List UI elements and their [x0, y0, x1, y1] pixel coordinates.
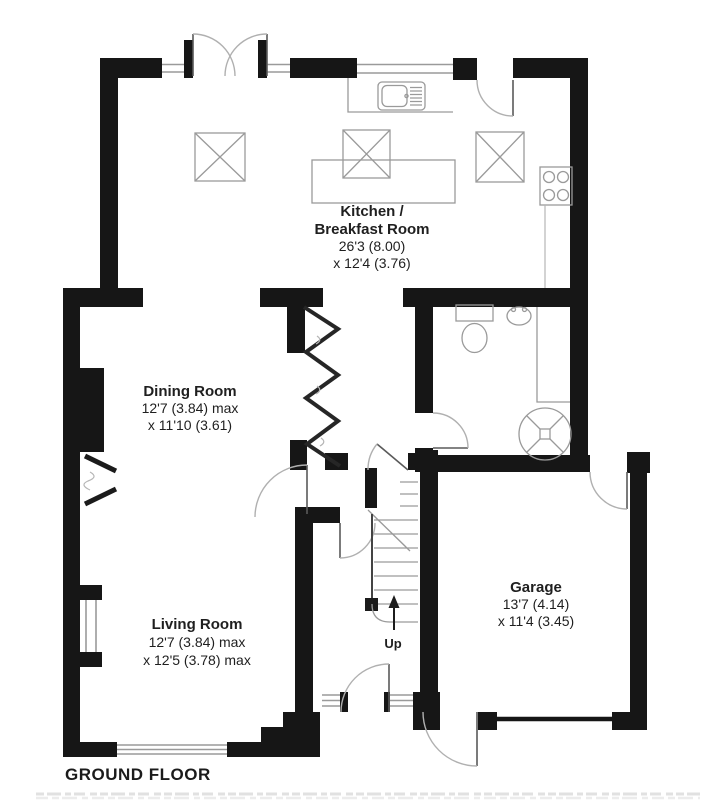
ground-floor-plan: Kitchen / Breakfast Room 26'3 (8.00) x 1… [0, 0, 709, 800]
dining-dims-line-2: x 11'10 (3.61) [148, 417, 232, 433]
kitchen-name-line-2: Breakfast Room [314, 221, 429, 238]
doors [193, 34, 627, 766]
shower-closet [537, 307, 570, 402]
fine-print-blurred [36, 794, 700, 798]
fireplace [84, 456, 116, 504]
rooflight-1 [195, 133, 245, 181]
dining-name: Dining Room [143, 383, 236, 400]
kitchen-island [312, 160, 455, 203]
hob [540, 167, 572, 205]
kitchen-window-over-sink [357, 65, 453, 74]
zigzag-partition [304, 307, 340, 466]
living-room-side-window [86, 600, 96, 652]
front-door-sidelight-right [390, 695, 413, 706]
up-label: Up [384, 636, 401, 651]
sink-drainer [378, 82, 425, 110]
kitchen-window-left [162, 65, 184, 73]
kitchen-name-line-1: Kitchen / [340, 203, 404, 220]
toilet [456, 305, 493, 353]
front-door-sidelight-left [322, 695, 340, 706]
wc-door [433, 413, 468, 448]
garage-label: Garage 13'7 (4.14) x 11'4 (3.45) [498, 579, 574, 629]
front-door [341, 664, 389, 712]
kitchen-back-door [477, 80, 513, 116]
water-tank [519, 408, 571, 460]
floor-title: GROUND FLOOR [65, 765, 211, 784]
rooflight-3 [476, 132, 524, 182]
kitchen-label: Kitchen / Breakfast Room 26'3 (8.00) x 1… [314, 203, 429, 271]
living-room-label: Living Room 12'7 (3.84) max x 12'5 (3.78… [143, 616, 251, 668]
rooflight-2 [343, 130, 390, 178]
dining-dims-line-1: 12'7 (3.84) max [142, 400, 239, 416]
up-arrow-icon [389, 595, 400, 630]
wash-basin [507, 307, 531, 325]
dining-room-label: Dining Room 12'7 (3.84) max x 11'10 (3.6… [142, 383, 239, 433]
living-dims-line-1: 12'7 (3.84) max [149, 634, 246, 650]
garage-name: Garage [510, 579, 562, 596]
living-name: Living Room [152, 616, 243, 633]
garage-dims-line-1: 13'7 (4.14) [503, 596, 570, 612]
living-dims-line-2: x 12'5 (3.78) max [143, 652, 251, 668]
kitchen-window-right [267, 65, 290, 73]
hall-door [340, 523, 375, 558]
garage-dims-line-2: x 11'4 (3.45) [498, 613, 574, 629]
kitchen-dims-line-1: 26'3 (8.00) [339, 238, 406, 254]
french-doors [193, 34, 267, 76]
kitchen-dims-line-2: x 12'4 (3.76) [333, 255, 410, 271]
living-room-front-window [117, 745, 227, 754]
inner-hall-door [368, 444, 408, 470]
floor-plan-page: Kitchen / Breakfast Room 26'3 (8.00) x 1… [0, 0, 709, 800]
wc-fixtures [456, 305, 571, 460]
garage-side-door [590, 472, 627, 509]
